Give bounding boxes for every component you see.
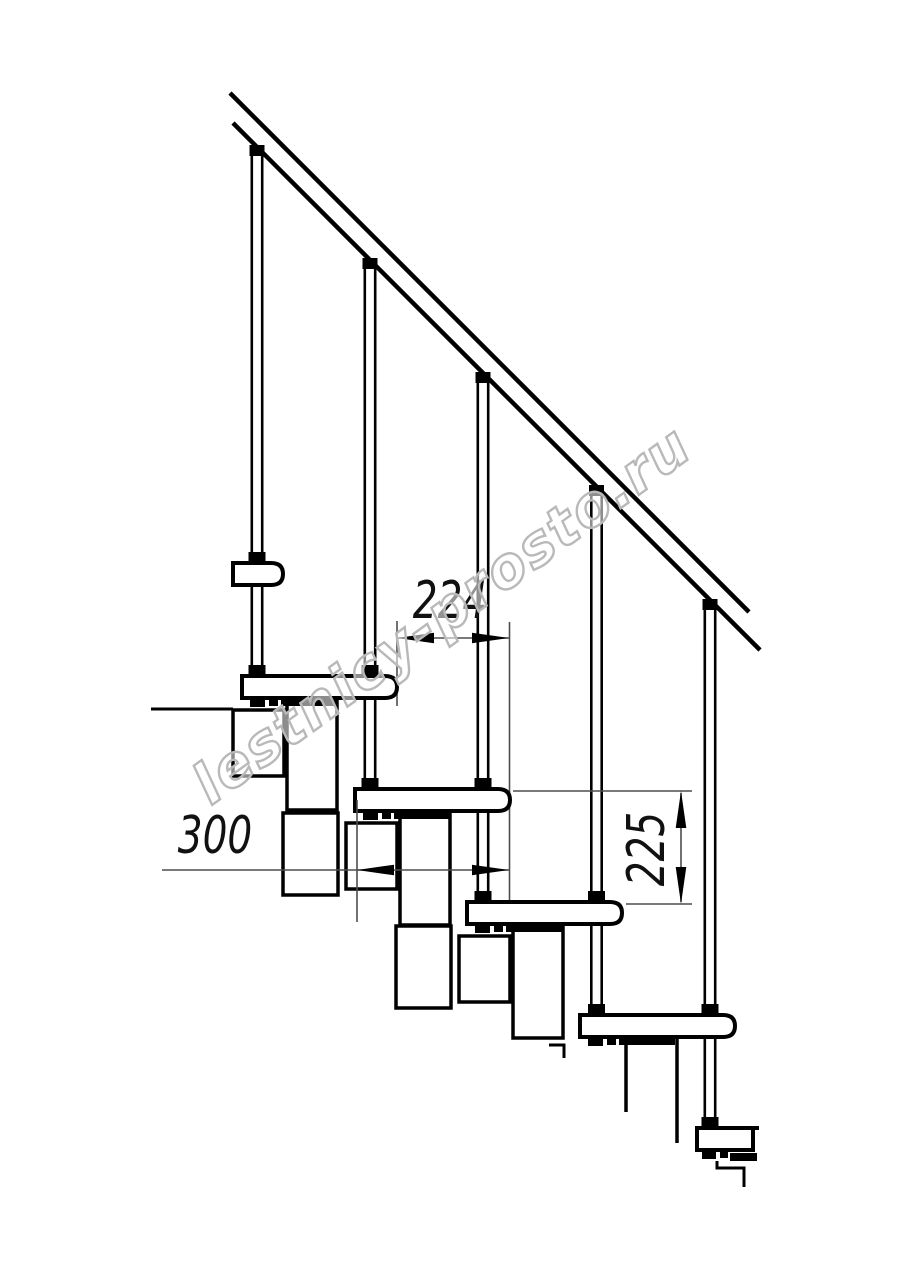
baluster-1-rail-cap bbox=[250, 145, 265, 156]
staircase-drawing: 224 300 225 lestnicy-prosto.ru bbox=[0, 0, 914, 1280]
bracket-foot bbox=[720, 1152, 728, 1158]
tread-5 bbox=[580, 1015, 735, 1037]
tread-1-cut bbox=[233, 563, 283, 585]
baluster-5-rail-cap bbox=[703, 599, 718, 610]
support-box-3 bbox=[459, 936, 510, 1002]
tread-6-cut bbox=[697, 1128, 753, 1150]
bracket-strip bbox=[506, 926, 562, 932]
arrowhead-right-icon bbox=[472, 865, 509, 876]
bracket-foot bbox=[702, 1151, 716, 1159]
support-cut-line-left bbox=[549, 1045, 564, 1058]
bracket-foot bbox=[494, 926, 503, 932]
staircase-drawing-page: 224 300 225 lestnicy-prosto.ru bbox=[0, 0, 914, 1280]
baluster-5-through-collar bbox=[702, 1004, 719, 1015]
bracket-strip bbox=[394, 813, 450, 819]
support-column-3 bbox=[513, 926, 563, 1038]
bracket-strip bbox=[730, 1153, 757, 1161]
support-lower-2 bbox=[396, 926, 451, 1008]
arrowhead-right-icon bbox=[472, 633, 509, 644]
dimension-rise-value: 225 bbox=[615, 812, 676, 886]
support-box-2 bbox=[346, 823, 397, 889]
bracket-strip bbox=[619, 1039, 675, 1045]
bracket-foot bbox=[363, 812, 378, 820]
baluster-1-through-collar bbox=[249, 552, 266, 563]
support-column-2 bbox=[400, 813, 450, 925]
baluster-5 bbox=[705, 604, 715, 1128]
bracket-foot bbox=[588, 1038, 603, 1046]
dimension-depth-value: 300 bbox=[178, 804, 252, 865]
support-lower-1 bbox=[283, 813, 338, 895]
baluster-3-rail-cap bbox=[476, 372, 491, 383]
baluster-1-mount-collar bbox=[249, 665, 266, 676]
baluster-2-rail-cap bbox=[363, 258, 378, 269]
tread-3 bbox=[355, 789, 510, 811]
baluster-2-mount-collar bbox=[362, 778, 379, 789]
baluster-5-mount-collar bbox=[702, 1117, 719, 1128]
watermark-text: lestnicy-prosto.ru bbox=[181, 413, 704, 818]
baluster-3-through-collar bbox=[475, 778, 492, 789]
baluster-1 bbox=[252, 150, 262, 676]
tread-4 bbox=[467, 902, 622, 924]
baluster-4-through-collar bbox=[588, 891, 605, 902]
baluster-4-mount-collar bbox=[588, 1004, 605, 1015]
arrowhead-down-icon bbox=[676, 867, 687, 904]
bracket-foot bbox=[475, 925, 490, 933]
bracket-foot bbox=[382, 813, 391, 819]
bracket-foot bbox=[607, 1039, 616, 1045]
baluster-4 bbox=[591, 490, 601, 1015]
baluster-3-mount-collar bbox=[475, 891, 492, 902]
arrowhead-up-icon bbox=[676, 791, 687, 828]
bottom-right-step-cut-line bbox=[717, 1161, 744, 1187]
